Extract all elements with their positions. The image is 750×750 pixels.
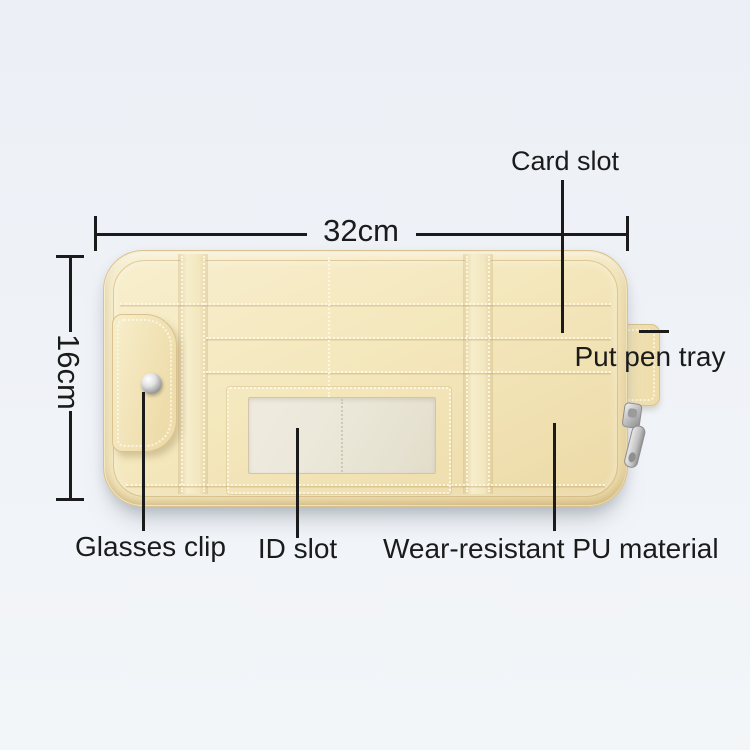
- left-vertical-strap: [178, 254, 208, 494]
- width-dimension-label: 32cm: [303, 214, 419, 247]
- visor-organizer-body: [103, 250, 628, 507]
- width-dimension-line-left: [96, 233, 307, 236]
- center-stitch-line: [328, 257, 330, 397]
- wear-resistant-label: Wear-resistant PU material: [383, 534, 717, 564]
- card-slot-seam-lower: [206, 371, 611, 373]
- glasses-clip-label: Glasses clip: [58, 532, 243, 562]
- height-dimension-line-bottom: [69, 411, 72, 500]
- strap-stitch-line: [181, 256, 183, 492]
- snap-button: [141, 373, 162, 394]
- strap-stitch-line: [203, 256, 205, 492]
- pen-tray-label: Put pen tray: [568, 342, 732, 372]
- id-slot-leader-line: [296, 428, 299, 538]
- id-window-center-stitch: [341, 399, 343, 472]
- card-slot-leader-line: [561, 180, 564, 333]
- strap-stitch-line: [488, 256, 490, 492]
- height-dimension-label: 16cm: [50, 333, 86, 411]
- zipper-pull: [616, 400, 654, 474]
- product-annotation-scene: 32cm 16cm Card slot Put pen tray Glasses…: [0, 0, 750, 750]
- height-dimension-line-top: [69, 257, 72, 332]
- right-vertical-strap: [463, 254, 493, 494]
- strap-stitch-line: [466, 256, 468, 492]
- glasses-clip-leader-line: [142, 392, 145, 531]
- pen-tray-leader-line: [639, 330, 669, 333]
- id-slot-label: ID slot: [235, 534, 360, 564]
- card-slot-seam-top: [120, 303, 611, 305]
- width-dimension-line-right: [416, 233, 627, 236]
- card-slot-seam-middle: [206, 337, 611, 339]
- card-slot-label: Card slot: [480, 147, 650, 176]
- id-window: [248, 397, 436, 474]
- wear-resistant-leader-line: [553, 423, 556, 531]
